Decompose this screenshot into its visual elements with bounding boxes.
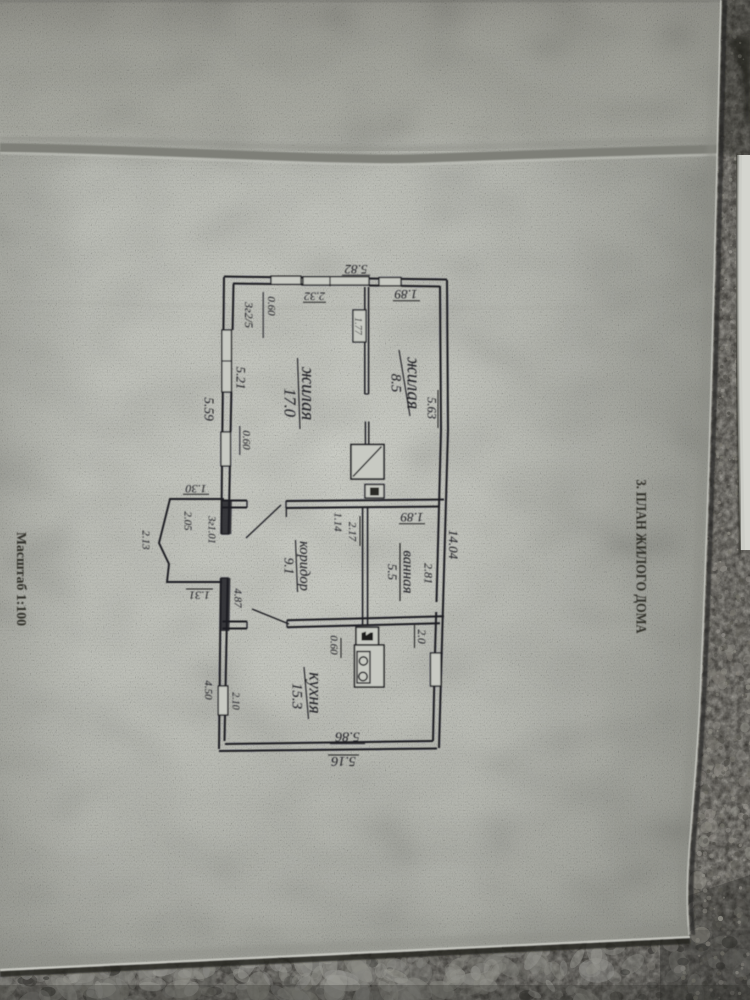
- svg-text:1.89: 1.89: [394, 287, 417, 302]
- svg-text:ванная: ванная: [399, 550, 415, 593]
- svg-text:4.50: 4.50: [202, 680, 214, 700]
- svg-text:2.32: 2.32: [304, 289, 325, 303]
- svg-text:0.60: 0.60: [240, 430, 252, 450]
- svg-text:3г1.01: 3г1.01: [205, 515, 216, 544]
- svg-text:17.0: 17.0: [281, 388, 300, 418]
- svg-text:2.17: 2.17: [346, 522, 358, 542]
- svg-text:5.59: 5.59: [201, 397, 216, 421]
- svg-text:2.13: 2.13: [139, 530, 151, 550]
- svg-text:1.14: 1.14: [331, 512, 343, 532]
- svg-text:9.1: 9.1: [281, 558, 296, 575]
- svg-text:2.81: 2.81: [421, 563, 435, 584]
- svg-text:8.5: 8.5: [387, 374, 403, 393]
- svg-text:0.60: 0.60: [265, 296, 277, 316]
- svg-text:жилая: жилая: [403, 357, 423, 410]
- svg-text:1.89: 1.89: [400, 510, 423, 525]
- svg-text:2.10: 2.10: [230, 692, 241, 710]
- svg-text:15.3: 15.3: [289, 683, 305, 709]
- svg-text:1.77: 1.77: [352, 317, 363, 336]
- svg-text:коридор: коридор: [296, 541, 312, 591]
- svg-text:0.60: 0.60: [327, 635, 339, 655]
- svg-text:Масштаб 1:100: Масштаб 1:100: [14, 532, 29, 626]
- svg-text:14.04: 14.04: [446, 530, 461, 560]
- svg-text:4.87: 4.87: [231, 588, 243, 608]
- svg-text:5.86: 5.86: [335, 728, 360, 743]
- svg-text:5.63: 5.63: [424, 397, 438, 419]
- svg-text:3. ПЛАН ЖИЛОГО ДОМА: 3. ПЛАН ЖИЛОГО ДОМА: [633, 480, 649, 634]
- svg-text:5.21: 5.21: [234, 367, 249, 390]
- svg-text:3г2/5: 3г2/5: [242, 301, 256, 328]
- svg-text:2.05: 2.05: [181, 511, 193, 531]
- svg-text:1.31: 1.31: [189, 588, 210, 602]
- svg-text:5.5: 5.5: [385, 564, 400, 581]
- svg-text:кухня: кухня: [306, 672, 326, 713]
- svg-text:2.0: 2.0: [415, 629, 427, 644]
